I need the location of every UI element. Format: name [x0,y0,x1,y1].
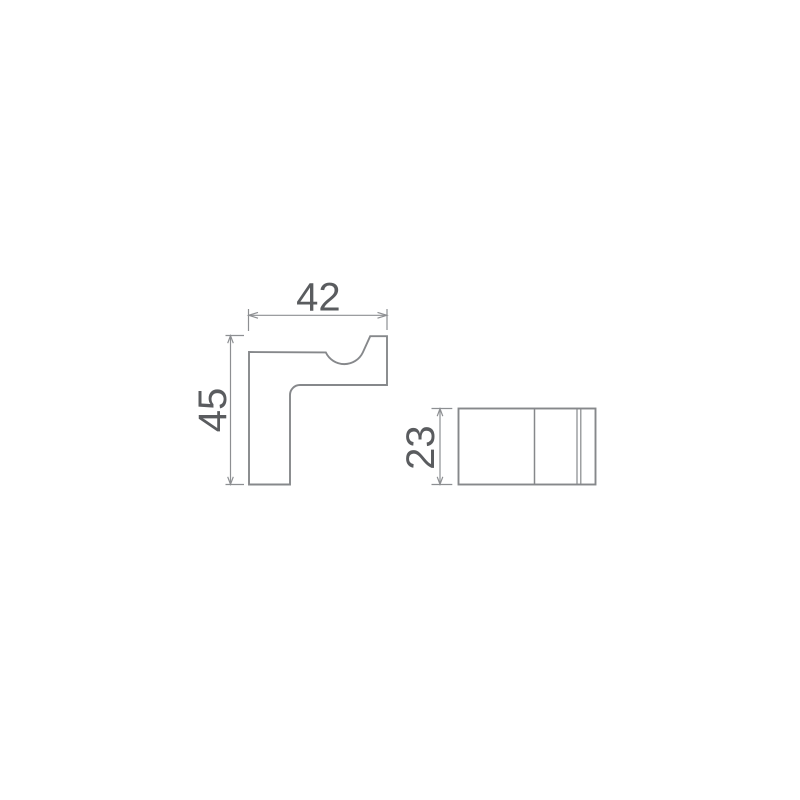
svg-text:23: 23 [399,425,443,470]
svg-text:42: 42 [296,276,341,320]
svg-text:45: 45 [191,388,235,433]
